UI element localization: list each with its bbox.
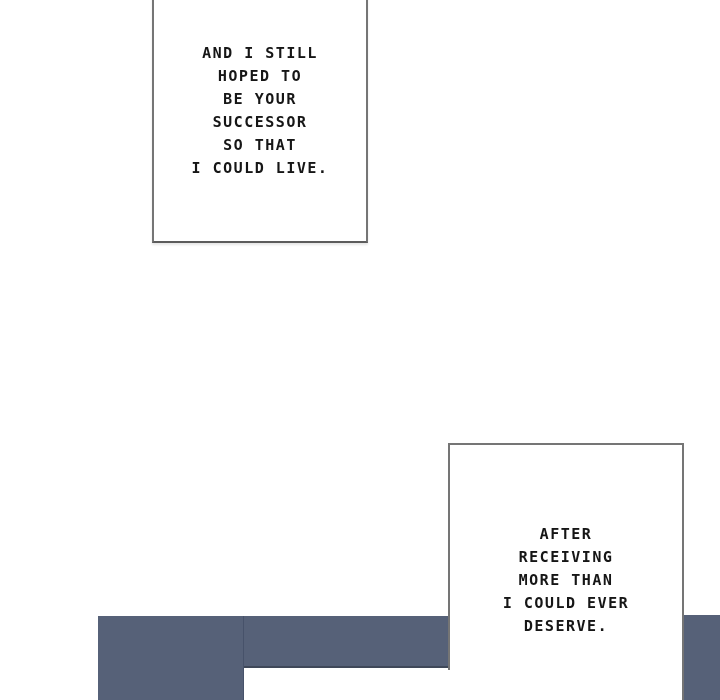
comic-page: AND I STILL HOPED TO BE YOUR SUCCESSOR S… (0, 0, 720, 700)
caption-line: I COULD LIVE. (154, 157, 366, 180)
caption-line: HOPED TO (154, 65, 366, 88)
caption-box-1-text: AND I STILL HOPED TO BE YOUR SUCCESSOR S… (154, 42, 366, 180)
caption-line: RECEIVING (450, 546, 682, 569)
panel-shape-strip-right (684, 615, 720, 700)
caption-line: AND I STILL (154, 42, 366, 65)
caption-line: MORE THAN (450, 569, 682, 592)
caption-line: I COULD EVER (450, 592, 682, 615)
border-fade-patch (446, 670, 452, 700)
caption-box-2: AFTER RECEIVING MORE THAN I COULD EVER D… (448, 443, 684, 700)
caption-line: SO THAT (154, 134, 366, 157)
caption-line: AFTER (450, 523, 682, 546)
caption-line: BE YOUR (154, 88, 366, 111)
caption-box-1: AND I STILL HOPED TO BE YOUR SUCCESSOR S… (152, 0, 368, 243)
caption-line: SUCCESSOR (154, 111, 366, 134)
panel-shape-leg-bottom-left (98, 616, 244, 700)
caption-box-2-text: AFTER RECEIVING MORE THAN I COULD EVER D… (450, 523, 682, 638)
caption-line: DESERVE. (450, 615, 682, 638)
